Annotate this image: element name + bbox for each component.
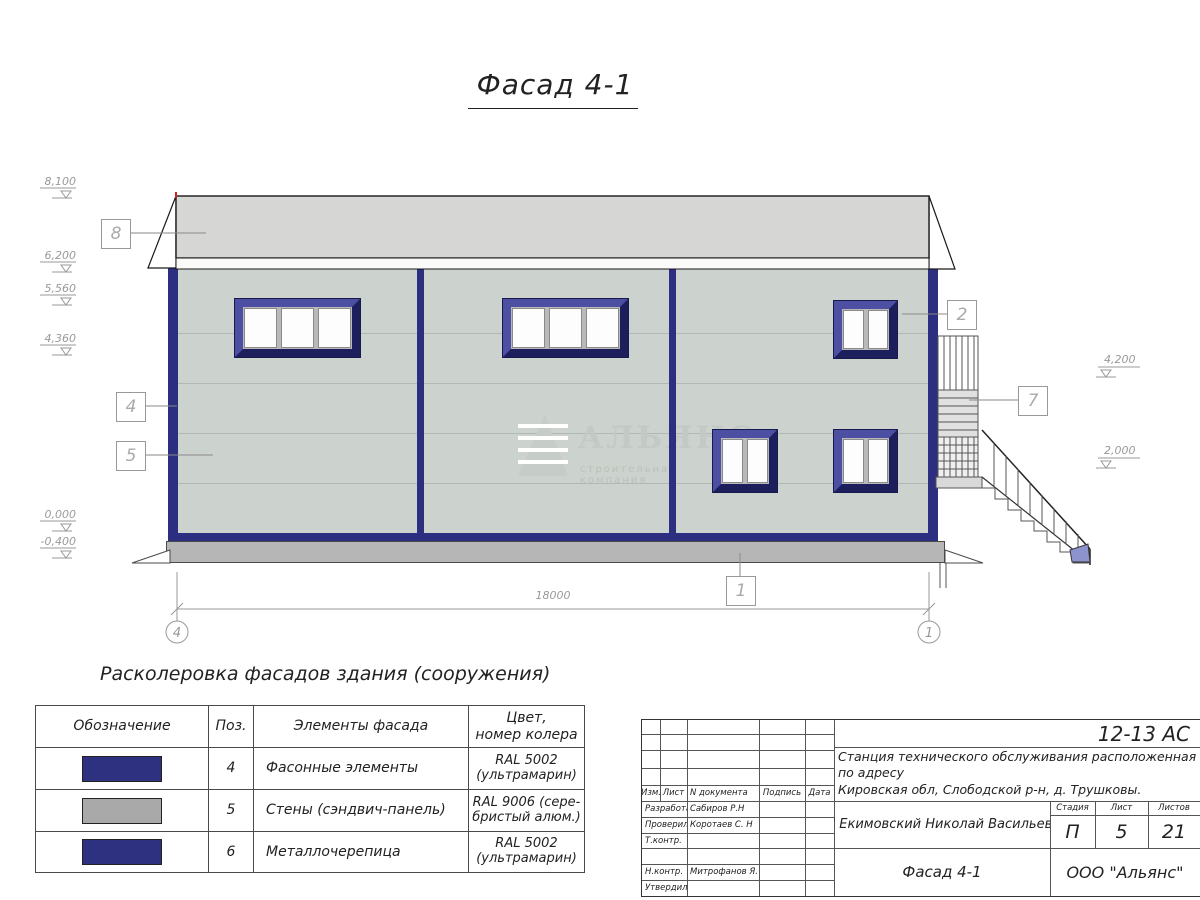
callout-wall: 5 [116, 441, 146, 471]
legend-col-header: Поз. [209, 706, 254, 748]
legend-col-header-line: номер колера [475, 727, 577, 743]
tb-sheet-title: Фасад 4-1 [834, 848, 1050, 896]
tb-rev-header: N документа [687, 785, 759, 801]
legend-color-line: бристый алюм.) [472, 811, 581, 826]
elevation-value: -0,400 [30, 535, 76, 548]
callout-corner: 4 [116, 392, 146, 422]
window-pane [512, 308, 545, 348]
window-pane [747, 439, 768, 483]
panel-joint [177, 383, 937, 384]
corner-post-right [928, 268, 938, 541]
tb-role: Н.контр. [642, 864, 687, 880]
axis-bubbles: 4 1 [166, 621, 940, 643]
legend-element: Фасонные элементы [254, 748, 469, 790]
elevation-value: 6,200 [30, 249, 76, 262]
tb-rule [642, 768, 834, 769]
tb-rev-header: Подпись [759, 785, 805, 801]
legend-color: RAL 5002 (ультрамарин) [469, 748, 584, 790]
ground-flare-left [132, 550, 170, 563]
company-watermark: АЛЬЯНС строительная компания [516, 412, 746, 484]
callout-roof: 8 [101, 219, 131, 249]
tb-name: Сабиров Р.Н [687, 801, 759, 817]
legend-pos: 6 [209, 832, 254, 872]
legend-swatch-cell [36, 832, 209, 872]
window-pane [281, 308, 314, 348]
dimension-value: 18000 [503, 589, 603, 602]
roof [148, 192, 955, 269]
window-pane [722, 439, 743, 483]
tb-sheet-number: 5 [1095, 815, 1148, 848]
color-swatch [82, 839, 162, 865]
window [713, 430, 777, 492]
tb-rev-header: Дата [805, 785, 834, 801]
elevation-value: 8,100 [30, 175, 76, 188]
tb-document-code: 12-13 АС [834, 720, 1200, 747]
elevation-value: 0,000 [30, 508, 76, 521]
legend-swatch-cell [36, 748, 209, 790]
tb-role: Проверил [642, 817, 687, 833]
elevation-value: 2,000 [1104, 444, 1136, 457]
window-pane [549, 308, 582, 348]
tb-sheet-count: 21 [1148, 815, 1200, 848]
tb-role: Т.контр. [642, 833, 687, 848]
legend-table: Обозначение Поз. Элементы фасада Цвет, н… [35, 705, 585, 873]
legend-element: Металлочерепица [254, 832, 469, 872]
window [834, 301, 897, 358]
tb-organization: ООО "Альянс" [1050, 848, 1200, 896]
elevation-value: 4,200 [1104, 353, 1136, 366]
tb-rule [642, 734, 834, 735]
legend-col-header: Цвет, номер колера [469, 706, 584, 748]
tb-rev-header: Лист [660, 785, 687, 801]
elevation-value: 5,560 [30, 282, 76, 295]
page-title: Фасад 4-1 [440, 68, 670, 101]
tb-name: Коротаев С. Н [687, 817, 759, 833]
legend-element: Стены (сэндвич-панель) [254, 790, 469, 832]
base-flashing [168, 533, 938, 541]
tb-rule [642, 750, 834, 751]
tb-role: Разработал [642, 801, 687, 817]
tb-project-line: Станция технического обслуживания распол… [838, 749, 1198, 782]
window [235, 299, 360, 357]
tb-stage-header: Стадия [1050, 801, 1095, 815]
window [834, 430, 897, 492]
tb-project: Станция технического обслуживания распол… [838, 749, 1198, 801]
tb-rule [834, 747, 1200, 748]
tb-stage-header: Листов [1148, 801, 1200, 815]
title-underline [468, 108, 638, 109]
callout-stair: 7 [1018, 386, 1048, 416]
tb-role: Утвердил [642, 880, 687, 896]
external-stairs [936, 336, 1090, 588]
window-pane [868, 310, 889, 349]
window-pane [586, 308, 619, 348]
window-pane [843, 310, 864, 349]
legend-color-line: RAL 9006 (сере- [473, 796, 581, 811]
axis-label: 4 [173, 626, 181, 641]
title-block: Изм. Лист N документа Подпись Дата Разра… [641, 719, 1200, 897]
legend-pos: 4 [209, 748, 254, 790]
window-pane [244, 308, 277, 348]
stair-foot [1070, 544, 1090, 562]
legend-heading: Расколеровка фасадов здания (сооружения) [100, 663, 550, 685]
tb-project-line: Кировская обл, Слободской р-н, д. Трушко… [838, 782, 1198, 798]
legend-color-line: RAL 5002 [495, 837, 557, 852]
tb-rule [805, 720, 806, 896]
panel-divider [669, 268, 676, 537]
window-pane [868, 439, 889, 483]
tb-rule [759, 720, 760, 896]
color-swatch [82, 756, 162, 782]
drawing-sheet: Фасад 4-1 АЛЬЯНС строительная компания [0, 0, 1200, 900]
corner-post-left [168, 268, 178, 541]
axis-label: 1 [925, 626, 933, 641]
tb-client: ИП Екимовский Николай Васильевич [834, 801, 1050, 848]
legend-col-header: Обозначение [36, 706, 209, 748]
tb-name: Митрофанов Я. А [687, 864, 759, 880]
legend-color: RAL 5002 (ультрамарин) [469, 832, 584, 872]
window-pane [318, 308, 351, 348]
legend-color: RAL 9006 (сере- бристый алюм.) [469, 790, 584, 832]
legend-color-line: (ультрамарин) [476, 852, 577, 867]
tb-stage-header: Лист [1095, 801, 1148, 815]
tb-stage-value: П [1050, 815, 1095, 848]
ground-flare-right [945, 550, 983, 563]
callout-plinth: 1 [726, 576, 756, 606]
legend-col-header: Элементы фасада [254, 706, 469, 748]
panel-divider [417, 268, 424, 537]
watermark-logo-icon [518, 414, 568, 480]
legend-swatch-cell [36, 790, 209, 832]
legend-color-line: RAL 5002 [495, 754, 557, 769]
legend-pos: 5 [209, 790, 254, 832]
legend-color-line: (ультрамарин) [476, 769, 577, 784]
plinth [166, 541, 945, 563]
color-swatch [82, 798, 162, 824]
window [503, 299, 628, 357]
callout-window: 2 [947, 300, 977, 330]
elevation-value: 4,360 [30, 332, 76, 345]
window-pane [843, 439, 864, 483]
legend-col-header-line: Цвет, [506, 710, 546, 726]
tb-rev-header: Изм. [642, 785, 660, 801]
